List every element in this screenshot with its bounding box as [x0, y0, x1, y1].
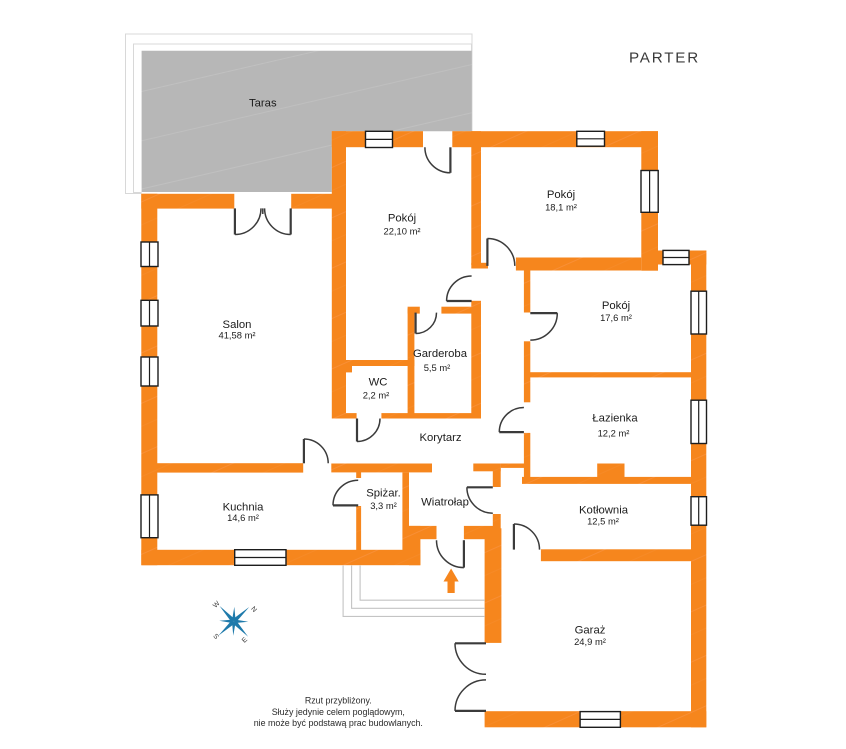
svg-text:Łazienka: Łazienka: [592, 413, 638, 425]
svg-text:Rzut przybliżony.: Rzut przybliżony.: [305, 696, 372, 706]
svg-text:Służy jedynie celem poglądowym: Służy jedynie celem poglądowym,: [272, 707, 405, 717]
svg-text:17,6 m²: 17,6 m²: [600, 312, 632, 323]
svg-text:Pokój: Pokój: [602, 300, 630, 312]
svg-text:2,2 m²: 2,2 m²: [363, 389, 390, 400]
svg-text:Garderoba: Garderoba: [413, 348, 468, 360]
svg-text:Pokój: Pokój: [547, 189, 575, 201]
svg-text:Pokój: Pokój: [388, 212, 416, 224]
svg-text:14,6 m²: 14,6 m²: [227, 512, 259, 523]
svg-text:nie może być podstawą prac bud: nie może być podstawą prac budowlanych.: [254, 718, 423, 728]
svg-text:5,5 m²: 5,5 m²: [424, 362, 451, 373]
svg-text:18,1 m²: 18,1 m²: [545, 201, 577, 212]
svg-text:PARTER: PARTER: [629, 50, 700, 67]
svg-text:Korytarz: Korytarz: [419, 432, 461, 444]
svg-text:12,5 m²: 12,5 m²: [587, 515, 619, 526]
svg-text:41,58 m²: 41,58 m²: [219, 330, 256, 341]
svg-text:12,2 m²: 12,2 m²: [598, 427, 630, 438]
svg-text:3,3 m²: 3,3 m²: [370, 500, 397, 511]
svg-text:22,10 m²: 22,10 m²: [384, 226, 421, 237]
svg-text:Wiatrołap: Wiatrołap: [421, 496, 469, 508]
svg-text:Taras: Taras: [249, 97, 277, 109]
svg-text:Spiżar.: Spiżar.: [366, 487, 401, 499]
svg-text:WC: WC: [369, 376, 388, 388]
svg-text:24,9 m²: 24,9 m²: [574, 636, 606, 647]
svg-text:Garaż: Garaż: [575, 624, 606, 636]
